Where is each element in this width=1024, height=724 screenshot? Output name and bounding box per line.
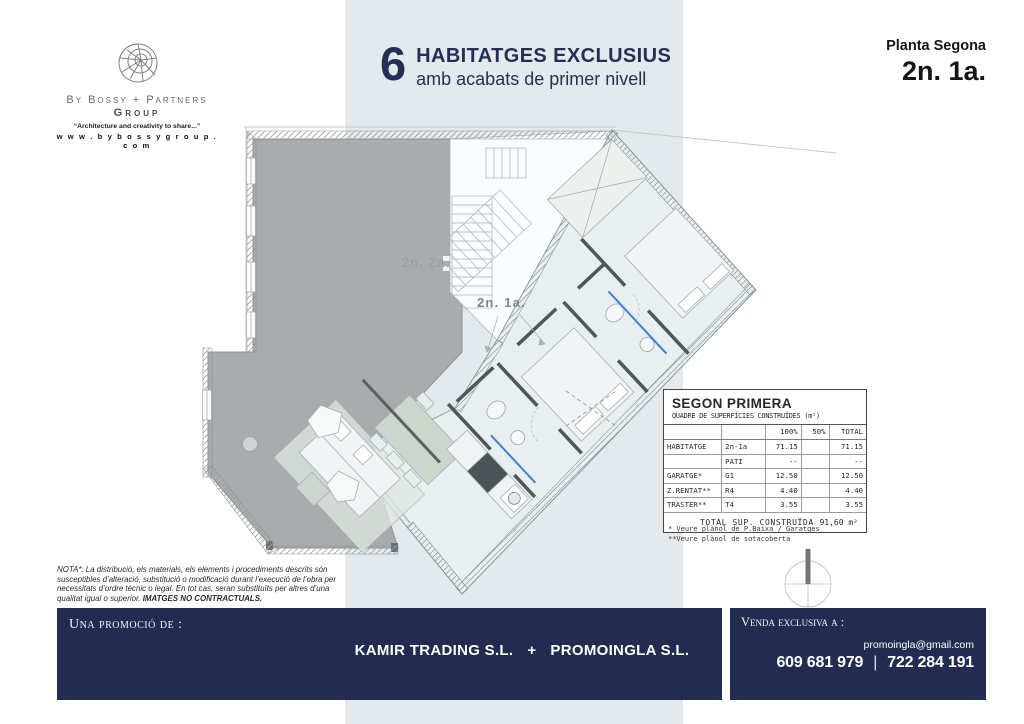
- brand-group: Group: [52, 107, 222, 119]
- surface-table: SEGON PRIMERA QUADRE DE SUPERFÍCIES CONS…: [663, 389, 867, 533]
- unit-label-2n1a: 2n. 1a.: [477, 295, 526, 310]
- total-value: 91,60 m²: [819, 518, 858, 527]
- terrace-column: [243, 437, 258, 452]
- phone-separator: |: [873, 654, 877, 671]
- table-row: GARATGE* G1 12.50 12.50: [664, 469, 866, 484]
- footnote-garages: * Veure plànol de P.Baixa / Garatges: [668, 524, 820, 534]
- col-50: 50%: [801, 425, 829, 440]
- main-heading: 6 HABITATGES EXCLUSIUS amb acabats de pr…: [380, 42, 671, 90]
- footer-promoter-bar: Una promoció de : KAMIR TRADING S.L.+PRO…: [57, 608, 722, 700]
- plan-reference: Planta Segona 2n. 1a.: [886, 38, 986, 87]
- table-header-row: 100% 50% TOTAL: [664, 425, 866, 440]
- heading-subtitle: amb acabats de primer nivell: [416, 69, 671, 90]
- footer-contact-bar: Venda exclusiva a : promoingla@gmail.com…: [730, 608, 986, 700]
- table-subtitle: QUADRE DE SUPERFÍCIES CONSTRUÏDES (m²): [664, 411, 866, 424]
- brand-name: By Bossy + Partners: [52, 94, 222, 106]
- floor-name: Planta Segona: [886, 38, 986, 54]
- compass: [785, 549, 831, 607]
- nautilus-shell-icon: [113, 34, 161, 90]
- brand-tagline: “Architecture and creativity to share...…: [52, 123, 222, 130]
- phone-number-2: 722 284 191: [887, 654, 974, 671]
- sales-label: Venda exclusiva a :: [741, 615, 844, 630]
- unit-name: 2n. 1a.: [886, 56, 986, 87]
- promoter-companies: KAMIR TRADING S.L.+PROMOINGLA S.L.: [322, 642, 722, 659]
- col-total: TOTAL: [829, 425, 866, 440]
- contact-email: promoingla@gmail.com: [864, 639, 974, 651]
- legal-note: NOTA*: La distribució, els materials, el…: [57, 565, 345, 603]
- col-100: 100%: [765, 425, 801, 440]
- heading-title: HABITATGES EXCLUSIUS: [416, 42, 671, 68]
- legal-note-bold: IMATGES NO CONTRACTUALS.: [143, 594, 263, 603]
- unit-label-2n2a: 2n. 2a.: [402, 255, 450, 270]
- units-count: 6: [380, 42, 406, 86]
- company-kamir: KAMIR TRADING S.L.: [355, 642, 514, 659]
- table-row: HABITATGE 2n-1a 71.15 71.15: [664, 440, 866, 455]
- company-logo: By Bossy + Partners Group “Architecture …: [52, 34, 222, 150]
- brochure-page: By Bossy + Partners Group “Architecture …: [0, 0, 1024, 724]
- footnote-under-roof: **Veure plànol de sotacoberta: [668, 534, 820, 544]
- phone-number-1: 609 681 979: [776, 654, 863, 671]
- plus-sign: +: [527, 642, 536, 659]
- table-row: Z.RENTAT** R4 4.40 4.40: [664, 483, 866, 498]
- brand-website: w w w . b y b o s s y g r o u p . c o m: [52, 132, 222, 150]
- table-footnotes: * Veure plànol de P.Baixa / Garatges **V…: [668, 524, 820, 544]
- table-row: PATI -- --: [664, 454, 866, 469]
- table-title: SEGON PRIMERA: [664, 390, 866, 411]
- table-row: TRASTER** T4 3.55 3.55: [664, 498, 866, 513]
- contact-phones: 609 681 979|722 284 191: [776, 654, 974, 672]
- company-promoingla: PROMOINGLA S.L.: [550, 642, 689, 659]
- promoter-label: Una promoció de :: [69, 617, 183, 633]
